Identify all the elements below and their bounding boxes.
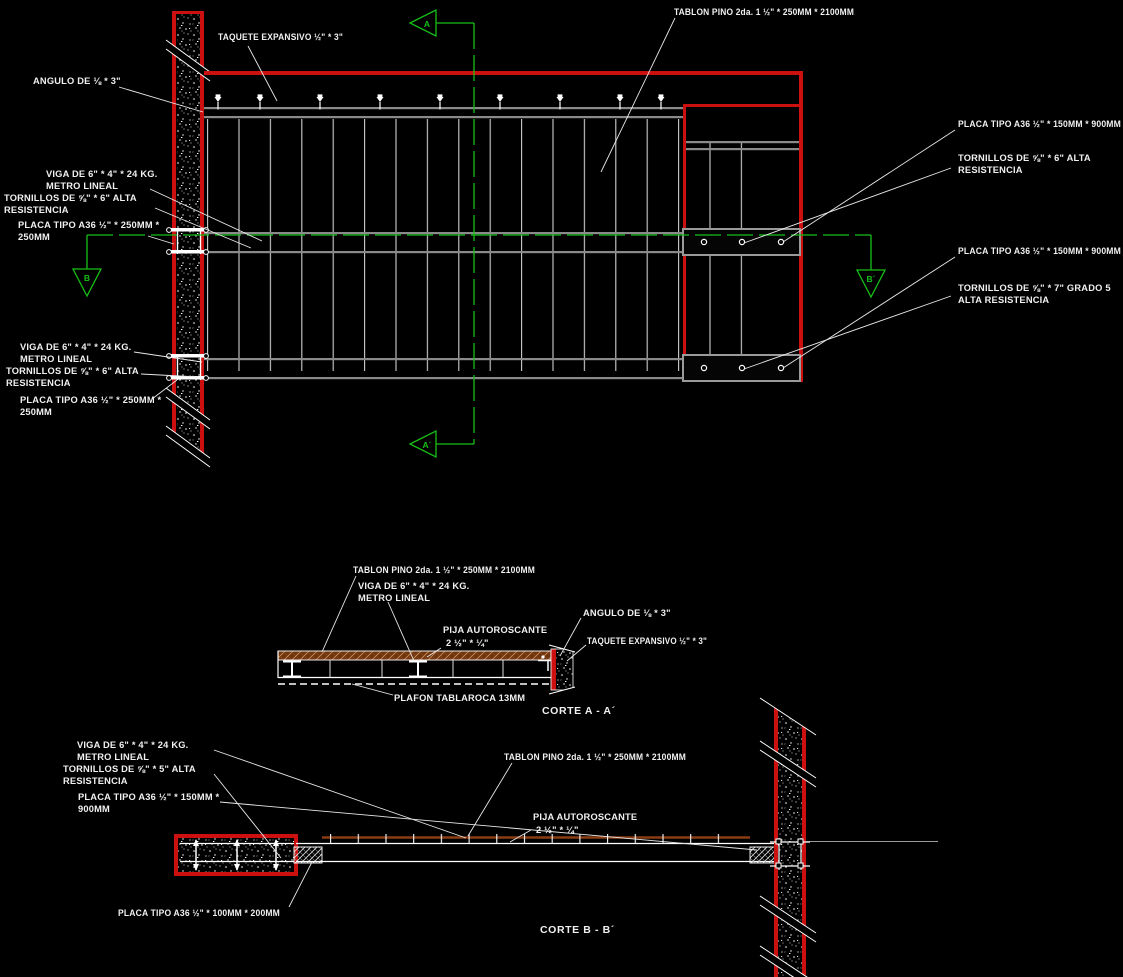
label-plafon-tablaroca: PLAFON TABLAROCA 13MM <box>394 693 525 703</box>
label-viga: VIGA DE 6" * 4" * 24 KG. <box>77 740 188 750</box>
angle-bracket <box>538 660 551 671</box>
wall-section-a <box>549 641 575 699</box>
label-metro-lineal: METRO LINEAL <box>20 354 92 364</box>
leader-line <box>783 130 955 242</box>
label-group-viga-left-1: VIGA DE 6" * 4" * 24 KG. METRO LINEAL TO… <box>4 169 160 242</box>
ibeam-left <box>283 661 301 677</box>
leader-line <box>352 684 393 695</box>
plank-lines <box>207 119 744 371</box>
label-resistencia: RESISTENCIA <box>958 165 1023 175</box>
label-pija-size: 2 ½" * ¼" <box>536 825 579 835</box>
label-resistencia: RESISTENCIA <box>63 776 128 786</box>
cad-drawing: A A´ B B´ TAQUETE EXPANSIVO ½" * 3" ANGU… <box>0 0 1123 977</box>
label-group-right: PLACA TIPO A36 ½" * 150MM * 900MM TORNIL… <box>958 119 1121 305</box>
leader-line <box>744 296 951 369</box>
marker-b-left-label: B <box>84 273 90 283</box>
label-placa-100-200: PLACA TIPO A36 ½" * 100MM * 200MM <box>118 908 280 918</box>
label-pija-autoroscante: PIJA AUTOROSCANTE <box>533 812 637 822</box>
section-marker-a-bottom <box>410 431 474 457</box>
leader-line <box>148 236 174 244</box>
leader-line <box>744 168 951 243</box>
label-tablon-pino: TABLON PINO 2da. 1 ½" * 250MM * 2100MM <box>353 565 535 575</box>
wall-right <box>760 688 938 977</box>
cad-canvas: A A´ B B´ TAQUETE EXPANSIVO ½" * 3" ANGU… <box>0 0 1123 977</box>
marker-a-top-label: A <box>424 19 430 29</box>
taquete-bolt <box>541 655 544 658</box>
section-marker-b-left <box>73 235 101 296</box>
leader-line <box>322 576 356 652</box>
plate-150x900-bottom <box>683 355 800 381</box>
label-metro-lineal: METRO LINEAL <box>77 752 149 762</box>
leader-line <box>214 750 466 838</box>
label-resistencia: RESISTENCIA <box>6 378 71 388</box>
marker-b-right-label: B´ <box>867 274 876 284</box>
label-tornillos: TORNILLOS DE ⅝" * 6" ALTA <box>6 366 139 376</box>
label-placa-250: PLACA TIPO A36 ½" * 250MM * <box>18 220 160 230</box>
label-alta-resistencia: ALTA RESISTENCIA <box>958 295 1049 305</box>
label-angulo: ANGULO DE ⅛ * 3" <box>33 76 121 86</box>
label-viga: VIGA DE 6" * 4" * 24 KG. <box>46 169 157 179</box>
label-tornillos: TORNILLOS DE ⅝" * 5" ALTA <box>63 764 196 774</box>
label-tornillos-grado5: TORNILLOS DE ⅝" * 7" GRADO 5 <box>958 283 1111 293</box>
plan-view: A A´ B B´ TAQUETE EXPANSIVO ½" * 3" ANGU… <box>4 7 1121 490</box>
label-placa-250: PLACA TIPO A36 ½" * 250MM * <box>20 395 162 405</box>
ibeam-middle <box>409 661 427 677</box>
corte-b-view: VIGA DE 6" * 4" * 24 KG. METRO LINEAL TO… <box>63 688 938 977</box>
plank-section <box>278 651 551 660</box>
label-placa-250mm: 250MM <box>20 407 52 417</box>
label-tornillos: TORNILLOS DE ⅝" * 6" ALTA <box>4 193 137 203</box>
label-tornillos: TORNILLOS DE ⅝" * 6" ALTA <box>958 153 1091 163</box>
label-viga: VIGA DE 6" * 4" * 24 KG. <box>358 581 469 591</box>
label-tablon-pino: TABLON PINO 2da. 1 ½" * 250MM * 2100MM <box>504 752 686 762</box>
label-metro-lineal: METRO LINEAL <box>46 181 118 191</box>
section-marker-a-top <box>410 10 474 36</box>
corte-a-title: CORTE A - A´ <box>542 705 616 717</box>
plank-mask <box>687 108 797 141</box>
joist-webs <box>330 660 503 677</box>
label-metro-lineal: METRO LINEAL <box>358 593 430 603</box>
plank-joint-ticks <box>330 834 745 843</box>
label-resistencia: RESISTENCIA <box>4 205 69 215</box>
label-viga: VIGA DE 6" * 4" * 24 KG. <box>20 342 131 352</box>
corte-b-leader-lines <box>214 750 757 907</box>
label-placa-150-900: PLACA TIPO A36 ½" * 150MM * 900MM <box>958 119 1121 129</box>
corte-b-title: CORTE B - B´ <box>540 924 615 936</box>
label-group-viga-bottom: VIGA DE 6" * 4" * 24 KG. METRO LINEAL TO… <box>63 740 220 814</box>
section-marker-b-right <box>857 235 885 297</box>
label-taquete-expansivo: TAQUETE EXPANSIVO ½" * 3" <box>587 636 707 646</box>
label-placa-900mm: 900MM <box>78 804 110 814</box>
label-taquete-expansivo: TAQUETE EXPANSIVO ½" * 3" <box>218 32 343 42</box>
leader-line <box>468 763 512 836</box>
corte-a-view: TABLON PINO 2da. 1 ½" * 250MM * 2100MM V… <box>278 565 707 717</box>
marker-a-bottom-label: A´ <box>423 440 432 450</box>
wall-block-left <box>176 836 296 874</box>
label-pija-size: 2 ½" * ¼" <box>446 638 489 648</box>
label-angulo: ANGULO DE ⅛ * 3" <box>583 608 671 618</box>
label-placa-150-900: PLACA TIPO A36 ½" * 150MM * 900MM <box>958 246 1121 256</box>
label-placa-250mm: 250MM <box>18 232 50 242</box>
label-group-viga-left-2: VIGA DE 6" * 4" * 24 KG. METRO LINEAL TO… <box>6 342 162 417</box>
plate-100x200 <box>294 847 322 863</box>
label-tablon-pino: TABLON PINO 2da. 1 ½" * 250MM * 2100MM <box>674 7 854 17</box>
plate-150x900-mid <box>683 229 800 255</box>
label-placa-150: PLACA TIPO A36 ½" * 150MM * <box>78 792 220 802</box>
label-pija-autoroscante: PIJA AUTOROSCANTE <box>443 625 547 635</box>
